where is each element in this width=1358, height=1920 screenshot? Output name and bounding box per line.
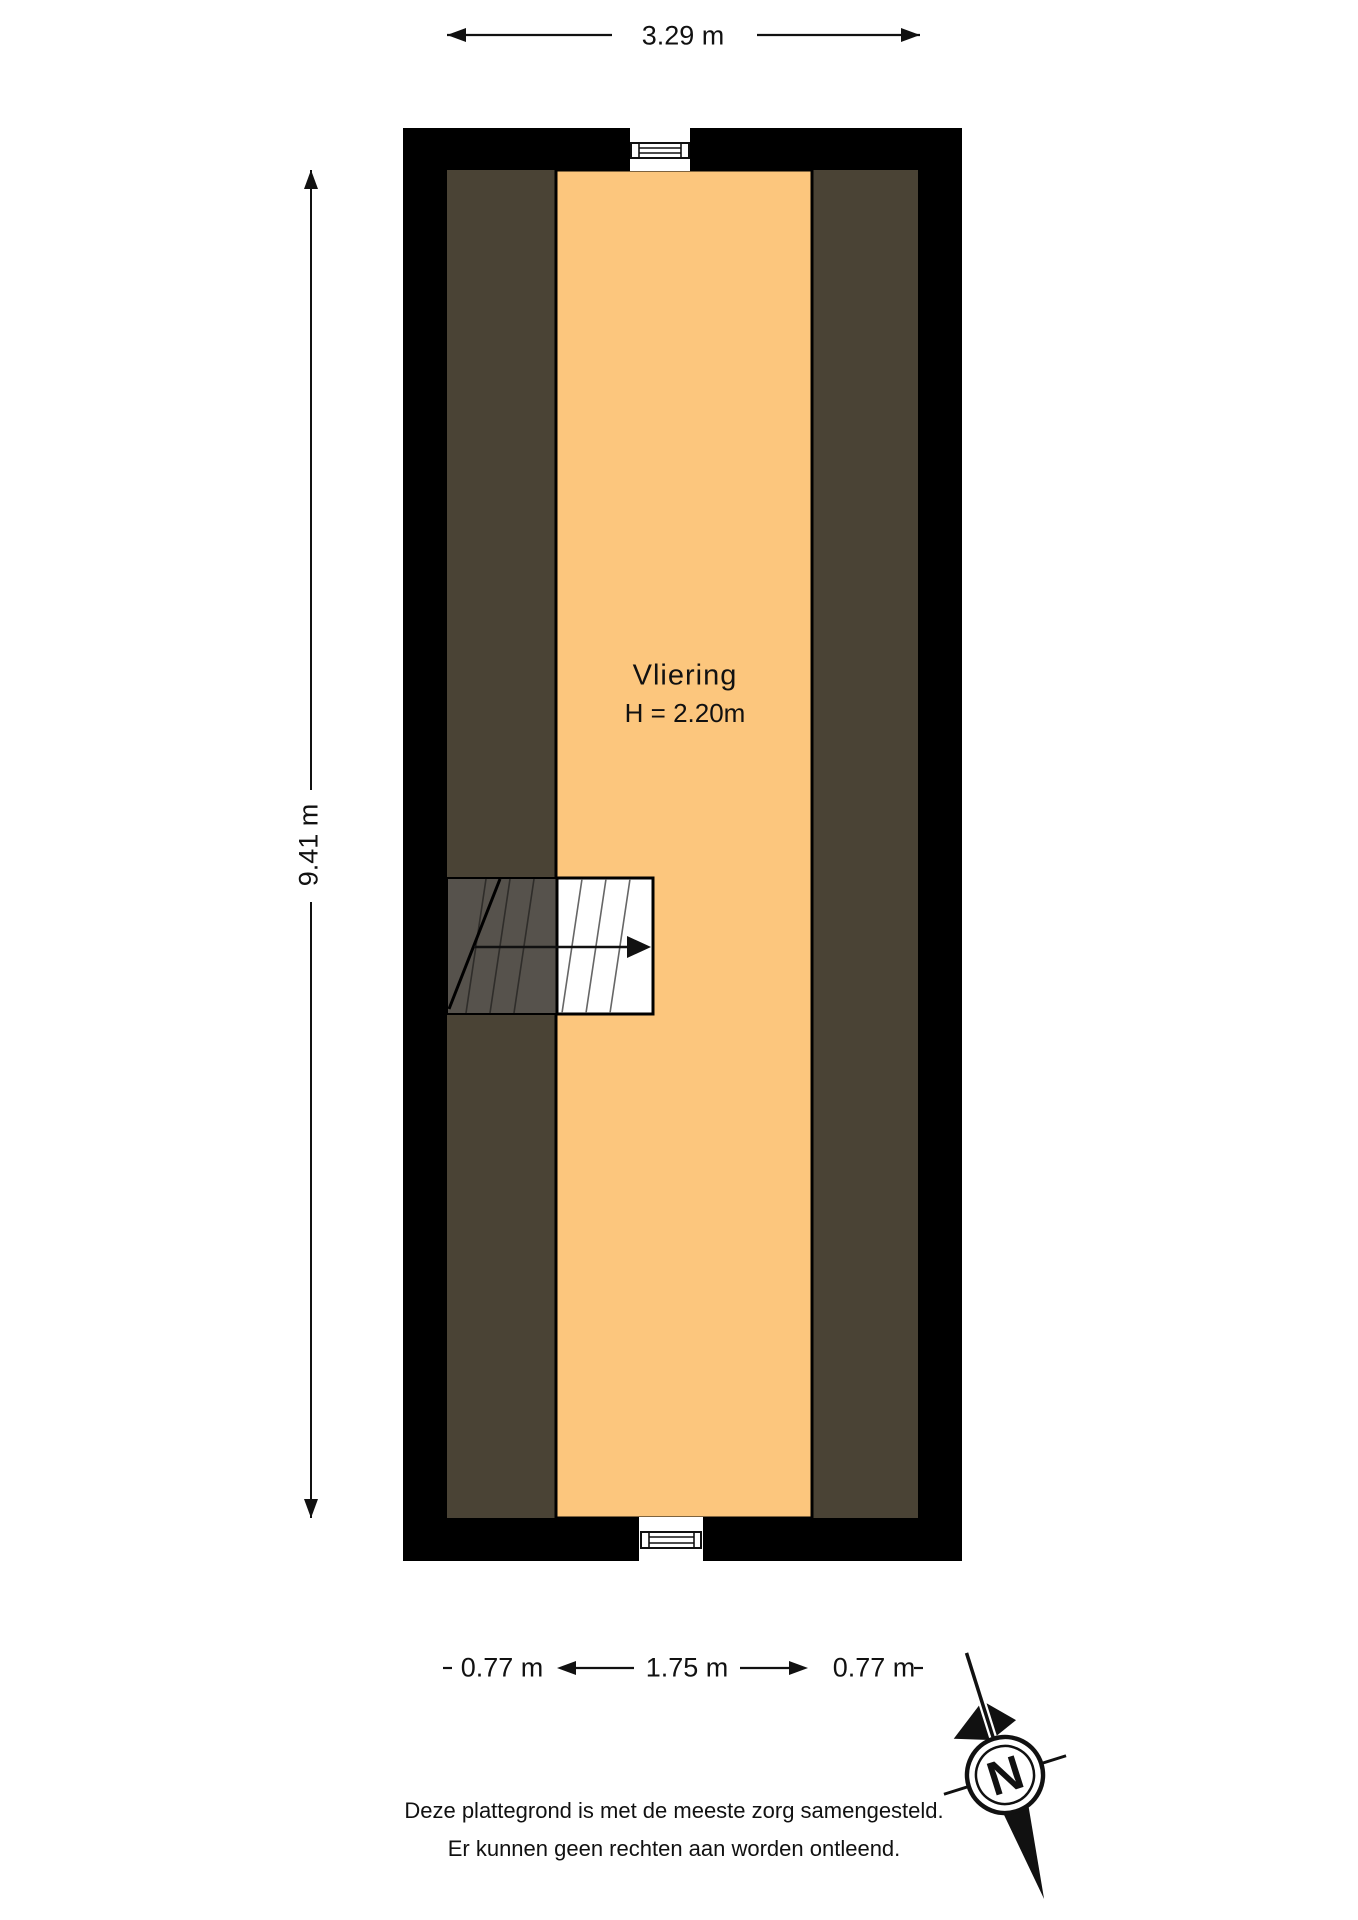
floor-plan-drawing: N (0, 0, 1358, 1920)
floor-plan-page: N 3.29 m 9.41 m Vliering H = 2.20m 0.77 … (0, 0, 1358, 1920)
attic-floor (556, 170, 812, 1518)
arrowhead-up-icon (304, 170, 318, 189)
arrowhead-down-icon (304, 1499, 318, 1518)
arrowhead-right-icon (901, 28, 920, 42)
arrowhead-left-icon (447, 28, 466, 42)
arrowhead-right-icon (789, 1661, 808, 1675)
room-height-label: H = 2.20m (625, 700, 746, 726)
window-bottom (639, 1517, 703, 1561)
window-top (630, 128, 690, 171)
disclaimer-line-1: Deze plattegrond is met de meeste zorg s… (404, 1800, 943, 1822)
dimension-bottom-right-label: 0.77 m (833, 1655, 916, 1682)
staircase (447, 878, 653, 1014)
dimension-bottom-middle-label: 1.75 m (646, 1655, 729, 1682)
compass: N (905, 1634, 1105, 1919)
floor-plan (403, 128, 962, 1561)
dimension-bottom-left-label: 0.77 m (461, 1655, 544, 1682)
dimension-total-width-label: 3.29 m (642, 23, 725, 50)
arrowhead-left-icon (557, 1661, 576, 1675)
dimension-total-height-label: 9.41 m (296, 804, 323, 887)
room-name-label: Vliering (633, 662, 738, 691)
disclaimer-line-2: Er kunnen geen rechten aan worden ontlee… (448, 1838, 901, 1860)
